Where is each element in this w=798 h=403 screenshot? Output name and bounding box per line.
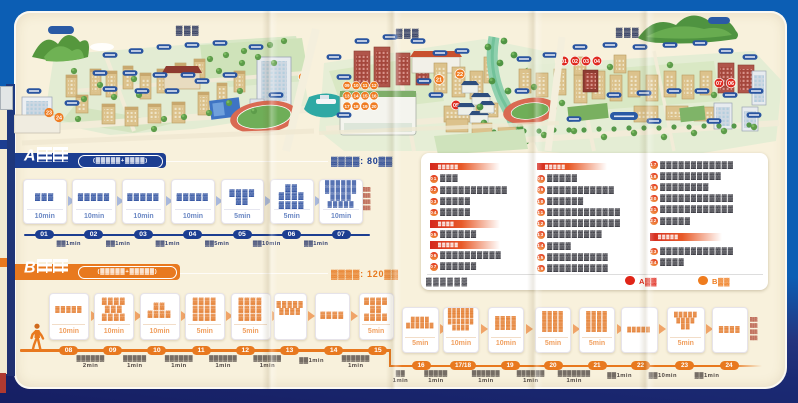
svg-text:18: 18 (353, 104, 359, 109)
svg-text:04: 04 (594, 59, 600, 65)
svg-text:03: 03 (583, 59, 589, 65)
svg-text:24: 24 (56, 116, 62, 122)
svg-text:09: 09 (344, 83, 350, 88)
svg-text:14: 14 (353, 94, 359, 99)
svg-text:19: 19 (362, 104, 368, 109)
svg-text:20: 20 (371, 104, 377, 109)
svg-text:12: 12 (371, 83, 377, 88)
svg-text:13: 13 (344, 94, 350, 99)
svg-text:02: 02 (572, 59, 578, 65)
svg-text:06: 06 (728, 81, 734, 87)
svg-text:22: 22 (457, 72, 463, 78)
svg-text:▓▓▓: ▓▓▓ (176, 25, 200, 36)
svg-text:21: 21 (436, 78, 442, 84)
svg-text:11: 11 (363, 83, 368, 88)
svg-text:10: 10 (353, 83, 359, 88)
svg-text:17: 17 (344, 104, 350, 109)
svg-text:15: 15 (362, 94, 368, 99)
svg-text:23: 23 (46, 111, 52, 117)
svg-text:▓▓▓: ▓▓▓ (616, 27, 640, 38)
svg-text:16: 16 (371, 94, 377, 99)
svg-text:07: 07 (716, 81, 722, 87)
